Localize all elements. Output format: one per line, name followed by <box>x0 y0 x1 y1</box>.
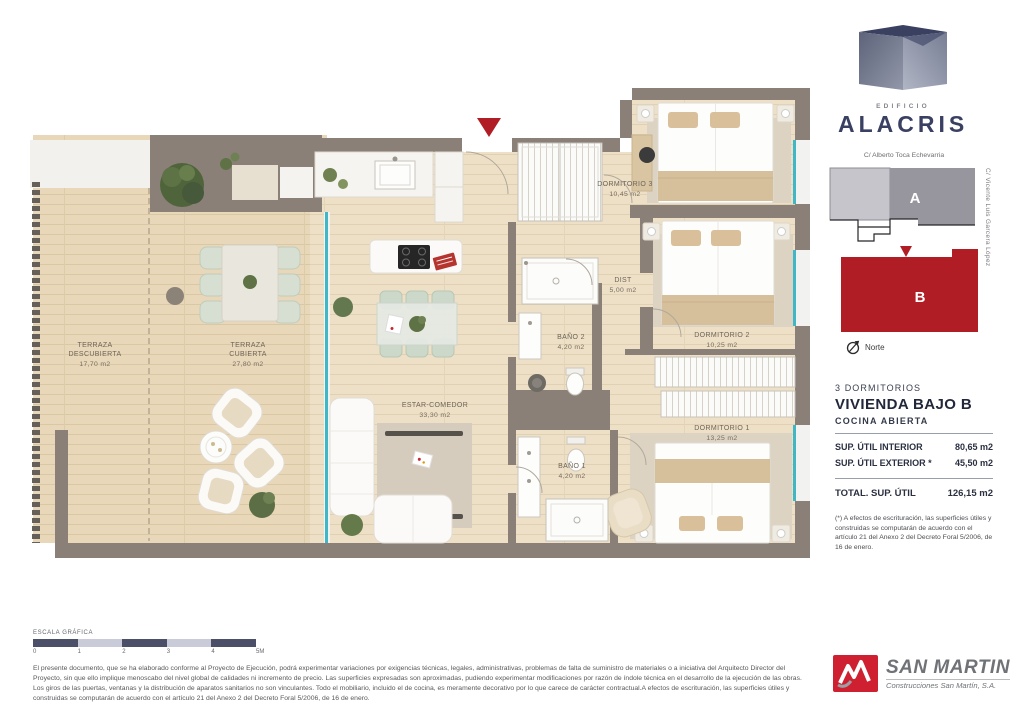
legal-disclaimer: El presente documento, que se ha elabora… <box>33 664 811 703</box>
unit-details-panel: 3 DORMITORIOS VIVIENDA BAJO B COCINA ABI… <box>835 383 993 552</box>
north-compass-icon <box>845 339 861 355</box>
building-label: EDIFICIO <box>838 103 968 110</box>
scale-bar: ESCALA GRÁFICA 012345M <box>33 630 273 658</box>
site-entrance-marker <box>900 246 912 257</box>
block-b-label: B <box>915 289 926 306</box>
builder-name: SAN MARTIN <box>886 658 1010 677</box>
unit-type: 3 DORMITORIOS <box>835 383 993 393</box>
toilet <box>567 373 584 395</box>
scale-tick: 0 <box>33 649 36 655</box>
street-right-label: C/ Vicente Luis Garcera López <box>984 168 991 338</box>
planter-inset <box>232 165 278 200</box>
surface-row-total: TOTAL. SUP. ÚTIL 126,15 m2 <box>835 484 993 502</box>
scale-segment <box>122 639 167 647</box>
tree <box>160 163 204 207</box>
plant <box>333 297 353 317</box>
cooktop <box>398 245 430 269</box>
cube-logo-icon <box>853 22 953 94</box>
surface-label: SUP. ÚTIL EXTERIOR * <box>835 458 932 468</box>
block-a-shape <box>890 168 975 225</box>
surface-label: SUP. ÚTIL INTERIOR <box>835 442 923 452</box>
scale-tick: 4 <box>211 649 214 655</box>
planter-inset <box>280 167 313 198</box>
building-name: ALACRIS <box>838 111 968 138</box>
builder-logo: SAN MARTIN Construcciones San Martín, S.… <box>833 655 1010 692</box>
entrance-marker <box>477 118 501 137</box>
wardrobe <box>655 357 795 387</box>
entry-closet <box>518 143 602 221</box>
scale-tick: 3 <box>167 649 170 655</box>
scale-tick: 2 <box>122 649 125 655</box>
surface-value: 80,65 m2 <box>955 442 993 452</box>
north-label: Norte <box>865 343 885 352</box>
scale-segments <box>33 639 256 647</box>
scale-segment <box>78 639 123 647</box>
shower <box>546 499 608 541</box>
surface-value: 126,15 m2 <box>948 488 993 499</box>
builder-subtitle: Construcciones San Martín, S.A. <box>886 679 1010 690</box>
unit-kitchen: COCINA ABIERTA <box>835 416 993 426</box>
bedroom-2 <box>643 221 790 325</box>
wardrobe <box>661 391 795 417</box>
room-label: TERRAZACUBIERTA27,80 m2 <box>229 342 267 368</box>
site-plan: A B <box>828 162 978 334</box>
scale-ticks: 012345M <box>33 649 273 658</box>
scale-label: ESCALA GRÁFICA <box>33 630 273 636</box>
scale-segment <box>33 639 78 647</box>
logo-cube-block: EDIFICIO ALACRIS <box>838 22 968 138</box>
scale-tick: 1 <box>78 649 81 655</box>
desk-chair <box>639 147 655 163</box>
brochure-page: TERRAZADESCUBIERTA17,70 m2TERRAZACUBIERT… <box>0 0 1024 724</box>
north-compass: Norte <box>845 339 885 355</box>
block-a-label: A <box>910 190 921 207</box>
surface-footnote: (*) A efectos de escrituración, las supe… <box>835 514 993 552</box>
surface-row-exterior: SUP. ÚTIL EXTERIOR * 45,50 m2 <box>835 455 993 471</box>
block-b-shape <box>841 249 978 332</box>
shower <box>522 258 598 304</box>
surface-label: TOTAL. SUP. ÚTIL <box>835 488 916 499</box>
scale-tick: 5M <box>256 649 264 655</box>
builder-mark-icon <box>833 655 878 692</box>
scale-segment <box>211 639 256 647</box>
unit-name: VIVIENDA BAJO B <box>835 396 993 413</box>
floor-plan: TERRAZADESCUBIERTA17,70 m2TERRAZACUBIERT… <box>25 85 815 563</box>
surface-value: 45,50 m2 <box>955 458 993 468</box>
sink <box>519 313 541 359</box>
scale-segment <box>167 639 212 647</box>
street-top-label: C/ Alberto Toca Echevarria <box>826 152 982 159</box>
surface-row-interior: SUP. ÚTIL INTERIOR 80,65 m2 <box>835 439 993 455</box>
